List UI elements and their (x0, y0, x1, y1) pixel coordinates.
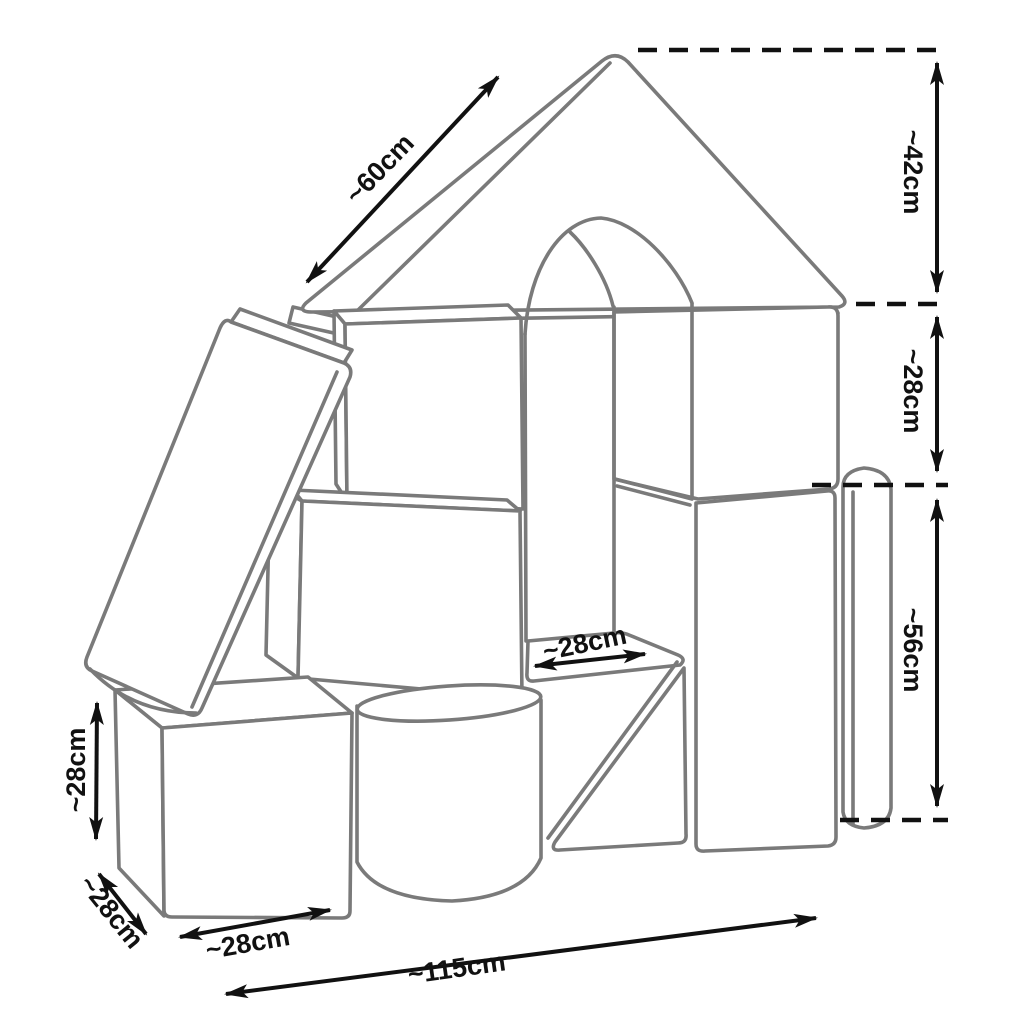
left-middle-cube-face (298, 501, 522, 698)
column-body (843, 468, 891, 828)
label-roof-height: ~42cm (898, 130, 928, 215)
left-upper-cube-block (334, 305, 523, 509)
label-cube-height: ~28cm (61, 728, 91, 813)
arrow-cube-height (96, 703, 97, 839)
cylinder-body (357, 700, 541, 901)
wedge-front-face (553, 668, 686, 850)
bottom-cube-side (115, 690, 164, 916)
left-middle-cube-block (266, 483, 522, 698)
cylinder-block (356, 680, 542, 901)
right-lower-block-face (696, 491, 836, 851)
right-upper-cube-face (614, 307, 838, 499)
right-upper-cube-block (614, 307, 838, 505)
doorway-left-edge (525, 334, 526, 641)
label-column-height: ~56cm (898, 608, 928, 693)
arrow-total-width (226, 918, 816, 994)
diagram-canvas: ~60cm ~42cm ~28cm ~56cm ~28cm ~28cm ~28c… (0, 0, 1024, 1024)
right-lower-block (696, 491, 836, 851)
label-roof-slope: ~60cm (339, 128, 420, 210)
block-set-dimension-diagram: ~60cm ~42cm ~28cm ~56cm ~28cm ~28cm ~28c… (0, 0, 1024, 1024)
left-upper-cube-face (345, 318, 523, 509)
label-total-width: ~115cm (406, 946, 508, 989)
label-cube-width: ~28cm (203, 921, 292, 965)
label-middle-block-height: ~28cm (898, 349, 928, 434)
bottom-cube-face (162, 713, 352, 918)
rounded-column-block (843, 468, 891, 828)
bottom-left-cube-block (115, 677, 352, 918)
